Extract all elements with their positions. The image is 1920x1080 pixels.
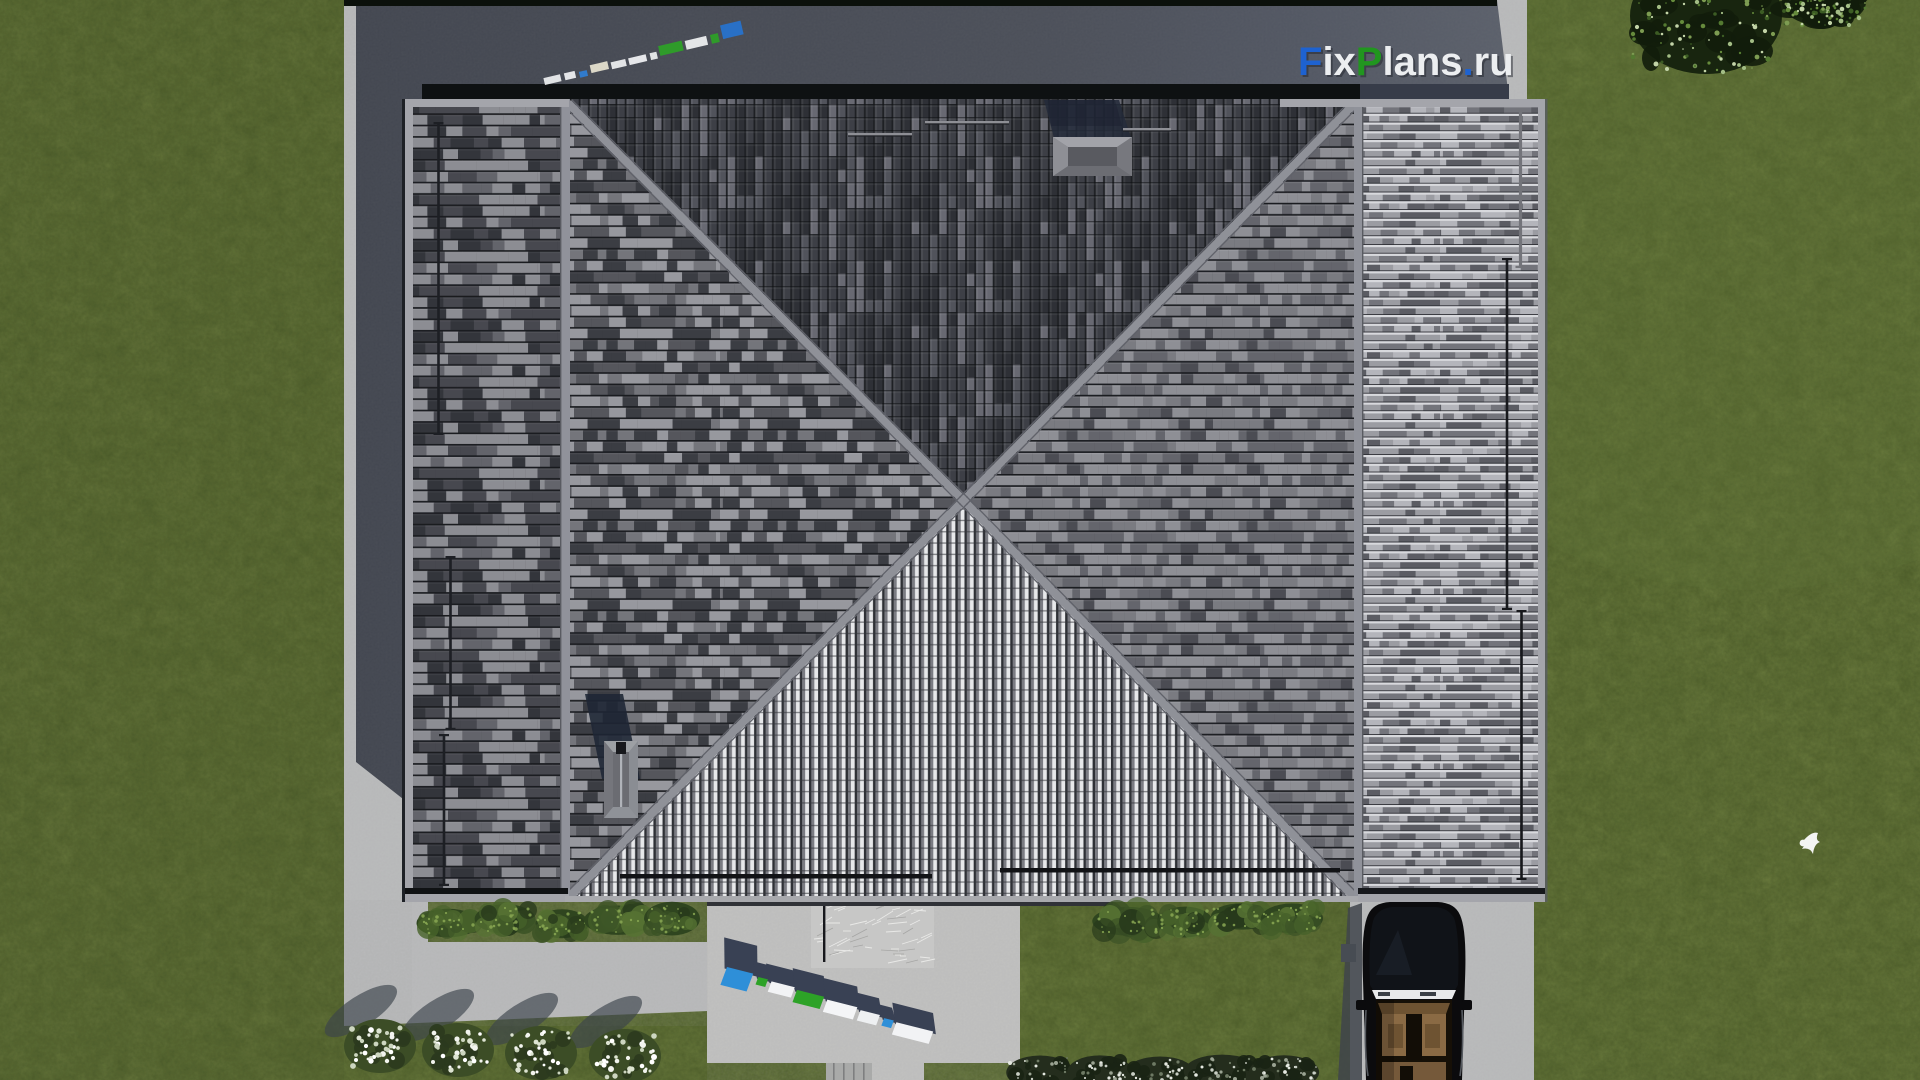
svg-text:FixPlans.ru: FixPlans.ru — [1298, 40, 1514, 84]
